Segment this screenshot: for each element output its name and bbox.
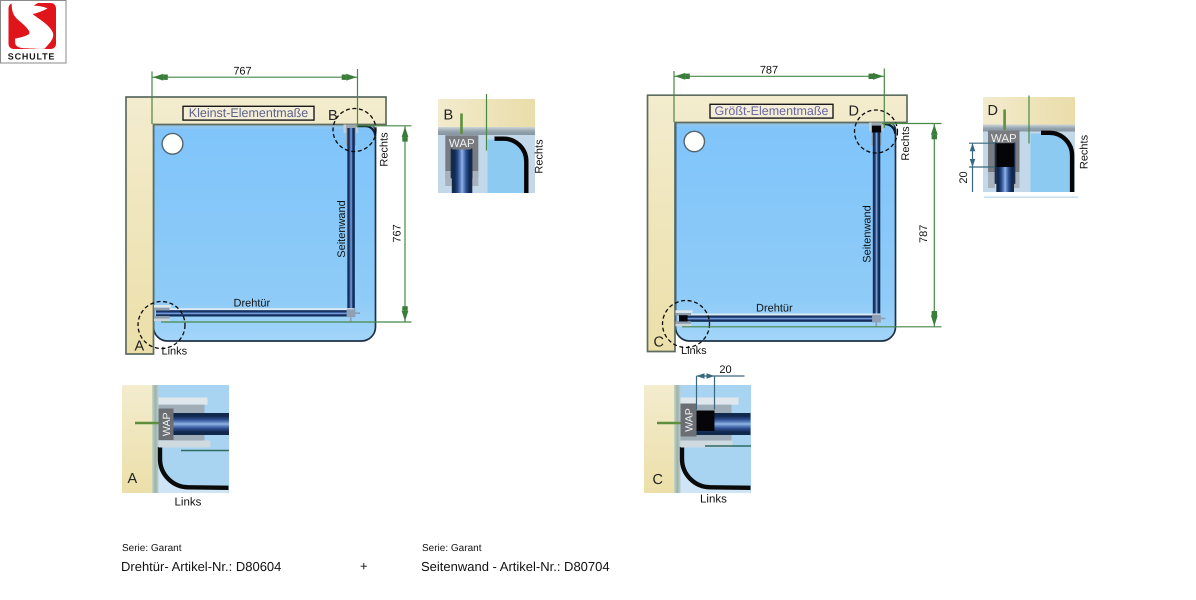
svg-text:Rechts: Rechts: [900, 126, 912, 161]
svg-text:Links: Links: [175, 497, 202, 509]
svg-text:787: 787: [918, 225, 930, 243]
svg-text:Links: Links: [681, 345, 707, 357]
svg-text:C: C: [654, 335, 664, 351]
svg-text:+: +: [360, 559, 368, 574]
svg-text:Seitenwand: Seitenwand: [862, 205, 874, 263]
svg-text:Drehtür: Drehtür: [756, 303, 793, 315]
svg-text:787: 787: [760, 65, 778, 77]
svg-text:Rechts: Rechts: [378, 132, 390, 167]
svg-text:Rechts: Rechts: [534, 139, 546, 174]
svg-text:Links: Links: [162, 346, 188, 358]
svg-text:20: 20: [719, 364, 731, 376]
svg-text:B: B: [444, 108, 454, 124]
svg-text:WAP: WAP: [161, 413, 173, 437]
svg-text:WAP: WAP: [683, 408, 695, 432]
svg-text:SCHULTE: SCHULTE: [8, 52, 55, 62]
svg-text:C: C: [653, 472, 663, 488]
svg-text:B: B: [328, 108, 338, 124]
svg-text:A: A: [135, 339, 145, 355]
svg-text:767: 767: [392, 224, 404, 242]
svg-text:Kleinst-Elementmaße: Kleinst-Elementmaße: [189, 106, 309, 120]
svg-text:Serie: Garant: Serie: Garant: [122, 543, 182, 554]
svg-text:Rechts: Rechts: [1079, 134, 1091, 169]
svg-text:Drehtür: Drehtür: [234, 297, 271, 309]
svg-text:D: D: [988, 103, 998, 119]
svg-text:Seitenwand: Seitenwand: [336, 200, 348, 258]
svg-text:Links: Links: [700, 494, 727, 506]
svg-text:767: 767: [233, 66, 251, 78]
svg-text:D: D: [849, 103, 859, 119]
svg-text:Serie: Garant: Serie: Garant: [422, 543, 482, 554]
svg-text:Drehtür- Artikel-Nr.: D80604: Drehtür- Artikel-Nr.: D80604: [121, 559, 281, 574]
svg-text:20: 20: [958, 171, 970, 183]
svg-text:WAP: WAP: [449, 138, 475, 150]
svg-text:A: A: [128, 471, 138, 487]
svg-text:Seitenwand - Artikel-Nr.: D80: Seitenwand - Artikel-Nr.: D80704: [421, 559, 610, 574]
svg-text:Größt-Elementmaße: Größt-Elementmaße: [715, 104, 829, 118]
